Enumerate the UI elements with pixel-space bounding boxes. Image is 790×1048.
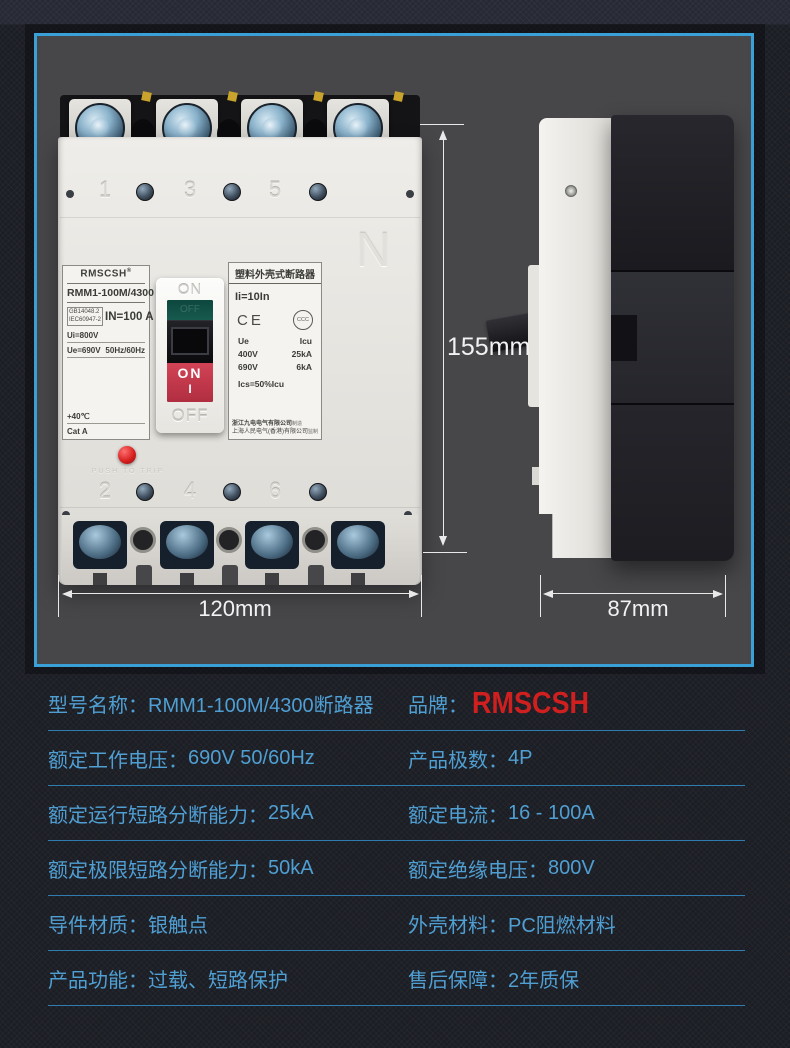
spec-label: 额定极限短路分断能力： xyxy=(48,854,268,883)
icu-25: 25kA xyxy=(292,348,312,361)
wire-marker xyxy=(227,91,238,102)
case-seam xyxy=(60,507,420,508)
wire-marker xyxy=(141,91,152,102)
spec-value: 690V 50/60Hz xyxy=(188,747,315,770)
face-screw xyxy=(223,183,241,201)
ue-rating: Ue=690V 50Hz/60Hz xyxy=(67,343,145,358)
side-rear-shell xyxy=(611,115,734,561)
face-screw xyxy=(136,483,154,501)
ui-value: Ui=800V xyxy=(67,331,98,340)
dim-height-tick-bottom xyxy=(423,552,467,553)
supervisor-line: 上海人民电气(香港)有限公司监制 xyxy=(232,428,318,436)
pole-number-6: 6 xyxy=(260,478,290,504)
wire-marker xyxy=(393,91,404,102)
manufacturer-tag: 制造 xyxy=(292,421,302,427)
spec-row-voltage: 额定工作电压：690V 50/60Hz 产品极数：4P xyxy=(48,731,745,786)
mounting-hole xyxy=(302,527,328,553)
bottom-terminal-screw xyxy=(166,525,208,559)
mounting-hole xyxy=(216,527,242,553)
face-screw xyxy=(136,183,154,201)
spec-cell: 产品极数：4P xyxy=(408,744,745,773)
spec-value: 4P xyxy=(508,747,532,770)
dim-height-line xyxy=(443,132,444,544)
standard-iec: IEC60947-2 xyxy=(69,317,101,325)
dim-width-label: 120mm xyxy=(180,596,290,622)
spec-label: 导件材质： xyxy=(48,909,148,938)
spec-cell: 额定极限短路分断能力：50kA xyxy=(48,854,408,883)
supervisor-name: 上海人民电气(香港)有限公司 xyxy=(232,429,308,435)
spec-row-model: 型号名称：RMM1-100M/4300断路器 品牌：RMSCSH xyxy=(48,676,745,731)
spec-label: 额定运行短路分断能力： xyxy=(48,799,268,828)
ui-rating: Ui=800V xyxy=(67,328,145,343)
pole-number-3: 3 xyxy=(175,177,205,203)
spec-row-material: 导件材质：银触点 外壳材料：PC阻燃材料 xyxy=(48,896,745,951)
bottom-terminal-slot xyxy=(245,521,299,569)
case-seam xyxy=(60,217,420,218)
manufacturer-name: 浙江九电电气有限公司 xyxy=(232,421,292,427)
spec-cell: 品牌：RMSCSH xyxy=(408,688,745,719)
spec-value: 25kA xyxy=(268,802,314,825)
ue-690: 690V xyxy=(238,361,258,374)
mounting-hole xyxy=(130,527,156,553)
spec-row-ultimate-breaking: 额定极限短路分断能力：50kA 额定绝缘电压：800V xyxy=(48,841,745,896)
foot-gap xyxy=(308,565,324,585)
handle-on-text: ON xyxy=(167,363,213,383)
spec-cell: 导件材质：银触点 xyxy=(48,909,408,938)
dim-height-tick-top xyxy=(420,124,464,125)
spec-cell: 外壳材料：PC阻燃材料 xyxy=(408,909,745,938)
case-screw xyxy=(406,190,414,198)
dim-depth-tick-right xyxy=(725,575,726,617)
temp-rating: +40℃ xyxy=(67,409,145,424)
spec-value: 800V xyxy=(548,857,595,880)
dim-width-arrow-left xyxy=(62,590,72,598)
spec-value: 银触点 xyxy=(148,909,208,938)
freq-value: 50Hz/60Hz xyxy=(105,346,145,355)
bottom-terminal-screw xyxy=(337,525,379,559)
toggle-window: OFF ON I xyxy=(167,300,213,402)
nameplate-right: 塑料外壳式断路器 Ii=10In CE CCC Ue 400V 690V Icu… xyxy=(228,262,322,440)
side-rear-section xyxy=(611,115,734,272)
spec-cell: 售后保障：2年质保 xyxy=(408,964,745,993)
spec-value: 2年质保 xyxy=(508,964,579,993)
spec-label: 额定电流： xyxy=(408,799,508,828)
divider xyxy=(67,283,145,284)
push-to-trip-label: PUSH TO TRIP xyxy=(72,468,184,475)
side-rear-section xyxy=(611,405,734,561)
pole-number-4: 4 xyxy=(175,478,205,504)
side-rear-section xyxy=(611,272,734,405)
ce-mark-icon: CE xyxy=(237,312,264,329)
manufacturer-line: 浙江九电电气有限公司制造 xyxy=(232,420,318,428)
spec-label: 品牌： xyxy=(408,689,468,718)
dim-depth-arrow-right xyxy=(713,590,723,598)
certification-marks: CE CCC xyxy=(229,306,321,332)
spec-label: 型号名称： xyxy=(48,689,148,718)
spec-cell: 额定工作电压：690V 50/60Hz xyxy=(48,744,408,773)
standards-box: GB14048.2 IEC60947-2 xyxy=(67,307,103,326)
neutral-pole-mark: N xyxy=(356,223,391,278)
ue-header: Ue xyxy=(238,335,258,348)
standard-gb: GB14048.2 xyxy=(69,309,101,317)
standards-row: GB14048.2 IEC60947-2 IN=100 A xyxy=(67,304,145,328)
toggle-on-label: ON xyxy=(156,278,224,298)
bottom-terminal-slot xyxy=(160,521,214,569)
dim-height-arrow-down xyxy=(439,536,447,546)
spec-row-service-breaking: 额定运行短路分断能力：25kA 额定电流：16 - 100A xyxy=(48,786,745,841)
icu-6: 6kA xyxy=(292,361,312,374)
spec-cell: 产品功能：过载、短路保护 xyxy=(48,964,408,993)
spec-label: 额定绝缘电压： xyxy=(408,854,548,883)
bottom-terminal-screw xyxy=(251,525,293,559)
rating-table-icu-col: Icu 25kA 6kA xyxy=(292,335,312,375)
spec-cell: 额定运行短路分断能力：25kA xyxy=(48,799,408,828)
face-screw xyxy=(309,183,327,201)
foot-notch xyxy=(265,573,279,585)
spacer xyxy=(67,358,145,409)
bottom-terminal-slot xyxy=(331,521,385,569)
brand-logo-red: RMSCSH xyxy=(472,686,589,721)
dim-depth-label: 87mm xyxy=(583,596,693,622)
spec-table: 型号名称：RMM1-100M/4300断路器 品牌：RMSCSH 额定工作电压：… xyxy=(48,676,745,1006)
ue-value: Ue=690V xyxy=(67,346,101,355)
divider xyxy=(67,302,145,303)
spec-cell: 额定电流：16 - 100A xyxy=(408,799,745,828)
brand-text: RMSCSH xyxy=(80,268,126,279)
ccc-mark-icon: CCC xyxy=(293,310,313,330)
foot-gap xyxy=(136,565,152,585)
spec-label: 售后保障： xyxy=(408,964,508,993)
spec-cell: 型号名称：RMM1-100M/4300断路器 xyxy=(48,689,408,718)
side-recess xyxy=(611,315,637,361)
product-photo-panel: 1 3 5 N RMSCSH® RMM1-100M/4300 GB14048.2… xyxy=(34,33,754,667)
nameplate-left: RMSCSH® RMM1-100M/4300 GB14048.2 IEC6094… xyxy=(62,265,150,440)
dim-width-tick-left xyxy=(58,575,59,617)
ics-rating: Ics=50%Icu xyxy=(229,375,321,389)
spec-value: 过载、短路保护 xyxy=(148,964,288,993)
spec-cell: 额定绝缘电压：800V xyxy=(408,854,745,883)
nameplate-title: 塑料外壳式断路器 xyxy=(229,263,321,284)
case-screw xyxy=(66,190,74,198)
company-lines: 浙江九电电气有限公司制造 上海人民电气(香港)有限公司监制 xyxy=(229,420,321,439)
breaker-front-view: 1 3 5 N RMSCSH® RMM1-100M/4300 GB14048.2… xyxy=(58,95,422,585)
dim-height-arrow-up xyxy=(439,130,447,140)
foot-gap xyxy=(222,565,238,585)
registered-mark: ® xyxy=(127,268,132,274)
model-text: RMM1-100M/4300 xyxy=(67,285,145,301)
face-screw xyxy=(223,483,241,501)
pole-number-1: 1 xyxy=(90,177,120,203)
temp-value: +40℃ xyxy=(67,412,90,421)
dim-width-line xyxy=(64,593,416,594)
side-screw xyxy=(565,185,577,197)
dim-width-arrow-right xyxy=(409,590,419,598)
ue-400: 400V xyxy=(238,348,258,361)
rating-table: Ue 400V 690V Icu 25kA 6kA xyxy=(229,332,321,375)
bottom-terminal-slot xyxy=(73,521,127,569)
category-rating: Cat A xyxy=(67,424,145,437)
dim-depth-tick-left xyxy=(540,575,541,617)
toggle-red-indicator: ON I xyxy=(167,363,213,402)
push-to-trip-button xyxy=(118,446,136,464)
dim-depth-line xyxy=(545,593,721,594)
wire-marker xyxy=(313,91,324,102)
toggle-switch: ON OFF ON I OFF xyxy=(156,278,224,433)
spec-row-function: 产品功能：过载、短路保护 售后保障：2年质保 xyxy=(48,951,745,1006)
spec-label: 产品极数： xyxy=(408,744,508,773)
bottom-terminal-screw xyxy=(79,525,121,559)
brand-logo-small: RMSCSH® xyxy=(67,268,145,282)
pole-number-5: 5 xyxy=(260,177,290,203)
handle-i-text: I xyxy=(167,383,213,395)
ii-rating: Ii=10In xyxy=(229,284,321,306)
spec-label: 产品功能： xyxy=(48,964,148,993)
dim-width-tick-right xyxy=(421,575,422,617)
supervisor-tag: 监制 xyxy=(308,429,318,435)
toggle-off-label: OFF xyxy=(156,402,224,426)
toggle-handle xyxy=(167,320,213,363)
pole-number-2: 2 xyxy=(90,478,120,504)
spec-value: 16 - 100A xyxy=(508,802,595,825)
face-screw xyxy=(309,483,327,501)
product-detail-page: 1 3 5 N RMSCSH® RMM1-100M/4300 GB14048.2… xyxy=(0,0,790,1048)
spec-value: RMM1-100M/4300断路器 xyxy=(148,689,374,718)
foot-notch xyxy=(93,573,107,585)
toggle-off-strip: OFF xyxy=(167,300,213,320)
side-front-shell xyxy=(539,118,613,558)
spec-value: PC阻燃材料 xyxy=(508,909,616,938)
dim-height-label: 155mm xyxy=(447,333,530,362)
rating-table-ue-col: Ue 400V 690V xyxy=(238,335,258,375)
foot-notch xyxy=(351,573,365,585)
bottom-terminals xyxy=(62,515,418,585)
toggle-handle-face xyxy=(171,327,209,355)
icu-header: Icu xyxy=(292,335,312,348)
spec-label: 外壳材料： xyxy=(408,909,508,938)
rated-current: IN=100 A xyxy=(105,311,153,323)
foot-notch xyxy=(180,573,194,585)
dim-depth-arrow-left xyxy=(543,590,553,598)
spec-label: 额定工作电压： xyxy=(48,744,188,773)
spec-value: 50kA xyxy=(268,857,314,880)
